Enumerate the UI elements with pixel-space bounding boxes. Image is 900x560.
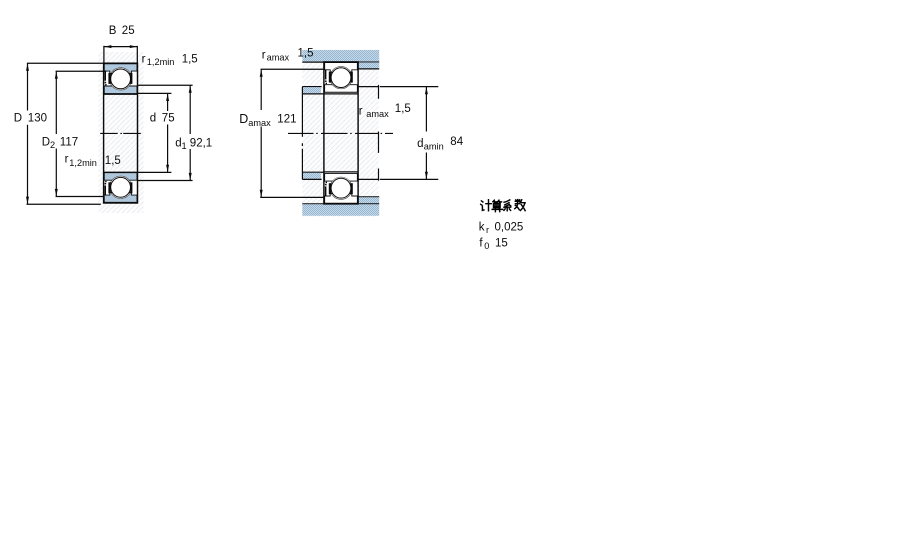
svg-text:1: 1: [182, 141, 187, 151]
svg-text:k: k: [479, 221, 485, 233]
svg-text:r: r: [142, 54, 146, 66]
svg-text:1,5: 1,5: [105, 155, 121, 167]
svg-text:1,2min: 1,2min: [147, 57, 175, 67]
svg-text:amax: amax: [366, 109, 389, 119]
svg-text:2: 2: [50, 140, 55, 150]
svg-text:92,1: 92,1: [190, 137, 212, 149]
svg-text:121: 121: [277, 114, 296, 126]
svg-text:130: 130: [28, 113, 47, 125]
svg-text:d: d: [150, 113, 156, 125]
svg-text:amax: amax: [248, 118, 271, 128]
svg-text:r: r: [262, 49, 266, 61]
svg-text:0,025: 0,025: [495, 221, 524, 233]
svg-text:r: r: [486, 225, 489, 235]
svg-text:117: 117: [60, 136, 78, 148]
svg-text:25: 25: [122, 25, 135, 37]
svg-text:1,5: 1,5: [298, 48, 314, 60]
svg-text:d: d: [417, 138, 423, 150]
svg-text:1,2min: 1,2min: [69, 158, 97, 168]
svg-text:84: 84: [450, 136, 463, 148]
svg-text:75: 75: [162, 113, 175, 125]
svg-text:0: 0: [484, 241, 489, 251]
svg-text:D: D: [42, 136, 50, 148]
svg-text:1,5: 1,5: [395, 103, 411, 115]
svg-text:amin: amin: [424, 141, 444, 151]
svg-text:D: D: [239, 112, 248, 126]
svg-text:B: B: [109, 25, 117, 37]
svg-text:r: r: [65, 154, 69, 166]
svg-text:15: 15: [495, 237, 508, 249]
svg-text:1,5: 1,5: [182, 54, 198, 66]
svg-text:r: r: [359, 106, 363, 118]
svg-text:amax: amax: [267, 53, 290, 63]
svg-text:D: D: [14, 113, 22, 125]
